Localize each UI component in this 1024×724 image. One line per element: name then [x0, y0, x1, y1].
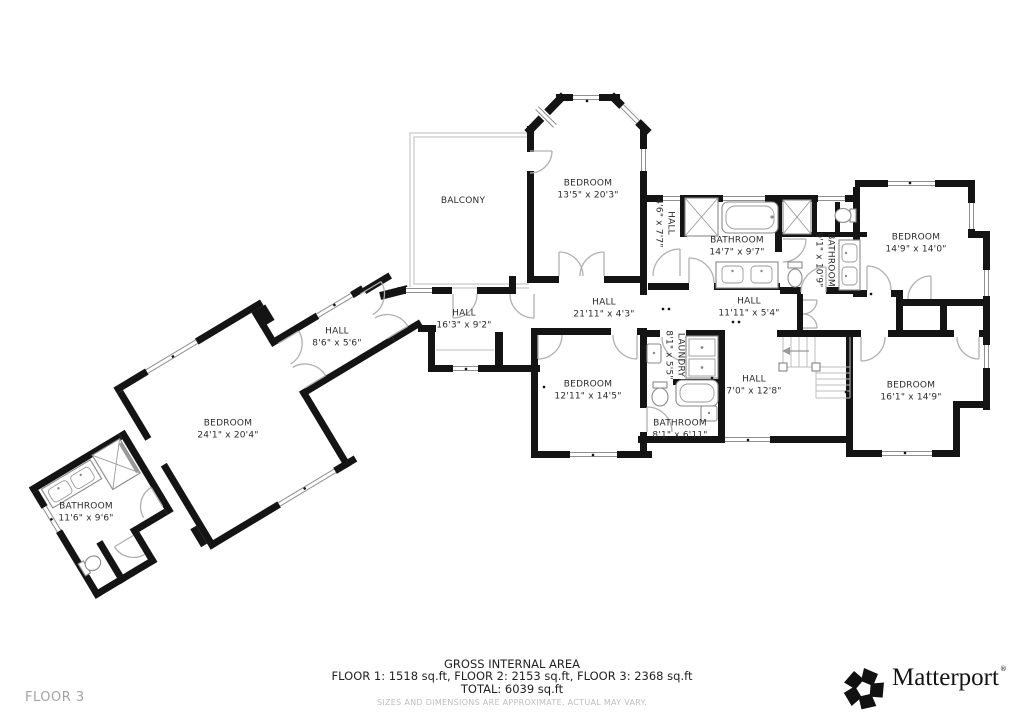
floor-plan-drawing	[0, 0, 1024, 724]
double-sink-icon	[716, 262, 778, 288]
room-label-bathroom-master: BATHROOM11'6" x 9'6"	[58, 501, 113, 524]
toilet-icon	[788, 262, 802, 287]
room-label-bathroom-right: BATHROOM9'1" x 10'9"	[812, 232, 835, 287]
balcony-outline	[410, 133, 529, 288]
floor-label: FLOOR 3	[25, 690, 85, 705]
disclaimer-text: SIZES AND DIMENSIONS ARE APPROXIMATE, AC…	[0, 697, 1024, 709]
shower-icon	[685, 198, 718, 236]
room-label-balcony: BALCONY	[441, 196, 485, 208]
staircase	[779, 337, 850, 398]
shower-icon	[783, 200, 811, 234]
matterport-wordmark: Matterport	[892, 664, 999, 692]
double-sink-icon	[839, 240, 860, 290]
toilet-icon	[835, 209, 856, 223]
room-label-bedroom-top: BEDROOM13'5" x 20'3"	[557, 178, 618, 201]
room-label-hall-diag: HALL8'6" x 5'6"	[312, 326, 361, 349]
matterport-brand: Matterport®	[840, 664, 1006, 692]
registered-mark: ®	[1000, 665, 1007, 673]
room-label-hall-small: HALL4'6" x 7'7"	[652, 198, 675, 247]
room-label-bedroom-right-bottom: BEDROOM16'1" x 14'9"	[880, 380, 941, 403]
bathtub-icon	[722, 202, 778, 233]
room-label-hall-long: HALL21'11" x 4'3"	[573, 297, 634, 320]
room-label-bathroom-mid: BATHROOM8'1" x 6'11"	[652, 418, 707, 441]
sink-icon	[647, 344, 661, 363]
floorplan-page: BALCONY BEDROOM13'5" x 20'3" HALL4'6" x …	[0, 0, 1024, 724]
room-label-hall-right: HALL11'11" x 5'4"	[718, 296, 779, 319]
room-label-hall-left: HALL16'3" x 9'2"	[436, 308, 491, 331]
room-label-bedroom-master: BEDROOM24'1" x 20'4"	[197, 418, 258, 441]
bathtub-icon	[676, 380, 718, 406]
room-label-bedroom-mid: BEDROOM12'11" x 14'5"	[554, 379, 621, 402]
washer-dryer-icon	[686, 336, 718, 378]
room-label-hall-stairs: HALL7'0" x 12'8"	[726, 374, 781, 397]
toilet-icon	[652, 382, 668, 406]
room-label-laundry: LAUNDRY8'1" x 5'5"	[662, 330, 685, 379]
room-label-bedroom-right-top: BEDROOM14'9" x 14'0"	[885, 232, 946, 255]
room-label-bathroom-main: BATHROOM14'7" x 9'7"	[709, 235, 764, 258]
